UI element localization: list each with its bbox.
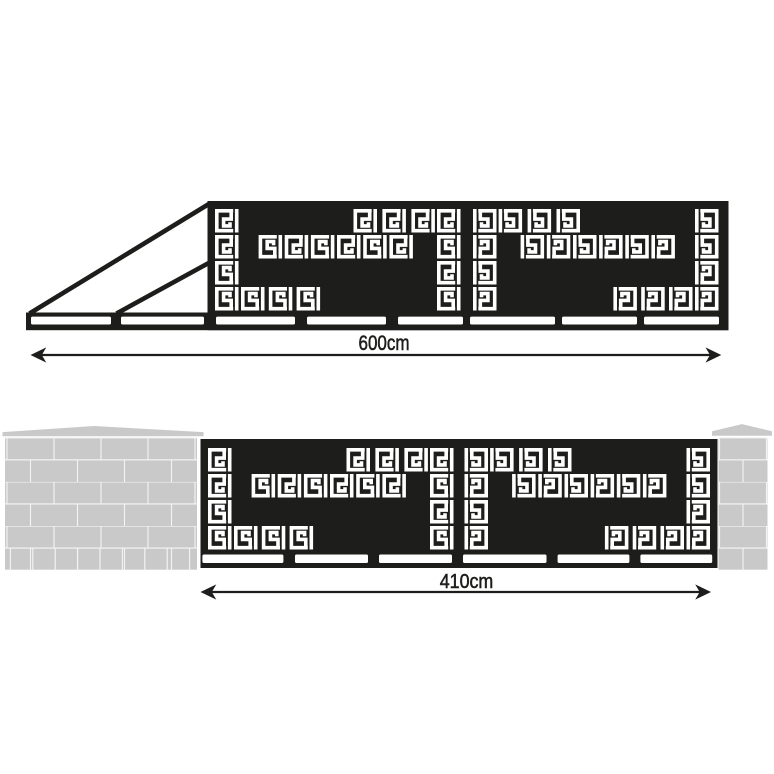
svg-text:410cm: 410cm xyxy=(440,570,494,593)
svg-text:600cm: 600cm xyxy=(359,331,410,355)
